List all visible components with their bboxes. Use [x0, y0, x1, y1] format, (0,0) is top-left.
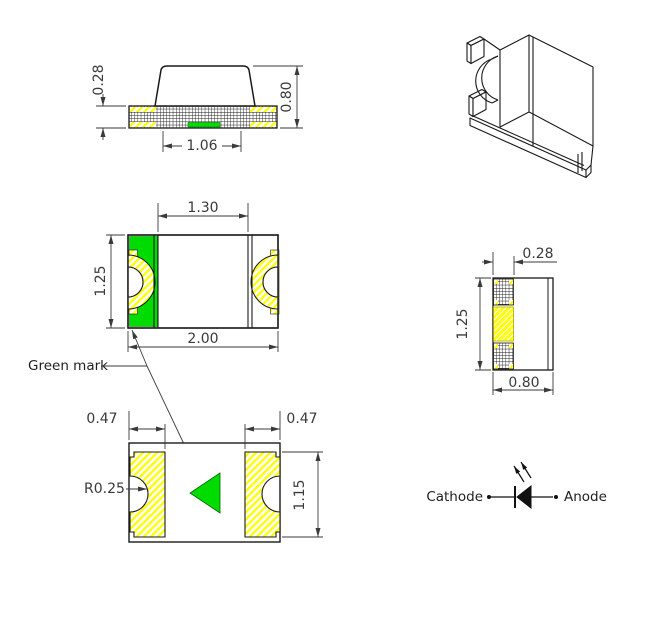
- light-emission-arrows: [514, 462, 531, 482]
- anode-terminal-dot: [554, 495, 558, 499]
- cathode-terminal-dot: [487, 495, 491, 499]
- iso-main-face: [533, 37, 593, 146]
- end-terminal-middle: [494, 307, 514, 341]
- iso-top-tab: [467, 37, 484, 64]
- side-green-mark: [188, 123, 220, 128]
- anode-label: Anode: [564, 489, 607, 505]
- cathode-label: Cathode: [426, 489, 483, 505]
- bottom-dim-pad-width-left: 0.47: [86, 411, 117, 427]
- side-view: 0.28 0.80 1.06: [91, 64, 303, 154]
- bottom-dim-pad-width-right: 0.47: [286, 411, 317, 427]
- side-dim-total-height: 0.80: [279, 81, 295, 112]
- iso-bottom-tab: [469, 90, 486, 117]
- end-dim-terminal-width: 0.28: [522, 246, 553, 262]
- diode-triangle: [517, 486, 531, 508]
- iso-mid-face: [500, 35, 529, 127]
- drawing-svg: 0.28 0.80 1.06: [0, 0, 659, 625]
- top-dim-inner-width: 1.30: [187, 200, 218, 216]
- isometric-view: [467, 35, 593, 178]
- top-view: 1.30 1.25 2.00: [93, 200, 279, 352]
- end-view: 0.28 1.25 0.80: [455, 246, 557, 395]
- side-lens: [155, 66, 255, 106]
- bottom-dim-notch-radius: R0.25: [84, 481, 125, 497]
- polarity-symbol: Cathode Anode: [426, 462, 607, 508]
- bottom-view: 0.47 0.47 R0.25 1.15: [84, 411, 323, 542]
- bottom-dim-pad-height: 1.15: [292, 479, 308, 510]
- end-dim-body-height: 1.25: [455, 308, 471, 339]
- led-package-drawing: 0.28 0.80 1.06: [0, 0, 659, 625]
- top-dim-total-width: 2.00: [187, 331, 218, 347]
- side-dim-bottom-width: 1.06: [186, 138, 217, 154]
- end-dim-body-width: 0.80: [508, 375, 539, 391]
- top-dim-body-height: 1.25: [93, 265, 109, 296]
- green-mark-label: Green mark: [28, 358, 108, 374]
- side-dim-terminal-height: 0.28: [91, 64, 107, 95]
